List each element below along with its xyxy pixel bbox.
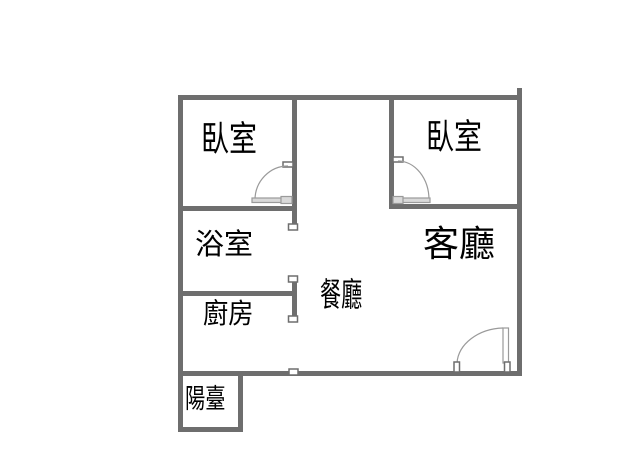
wall-bedroom-left-bottom <box>178 206 297 211</box>
room-label-living-room: 客廳 <box>423 226 495 262</box>
entrance-jamb-left <box>454 362 460 372</box>
door-arc-bedroom-right <box>398 161 429 200</box>
wall-left <box>178 95 183 432</box>
room-label-balcony: 陽臺 <box>185 386 226 413</box>
wall-balcony-bottom <box>178 427 243 432</box>
door-bedroom-left <box>252 162 293 204</box>
doorway-jamb-bathroom <box>289 224 298 230</box>
wall-bottom <box>178 371 522 376</box>
wall-right <box>517 88 522 376</box>
door-arc-bedroom-left <box>255 166 288 200</box>
door-leaf-bedroom-right <box>399 198 430 203</box>
doorway-jamb-bottom-wall <box>289 369 298 375</box>
entrance-jamb-right <box>505 362 511 372</box>
wall-dining-partition <box>292 282 297 316</box>
wall-bedroom-right-bottom <box>389 204 522 209</box>
door-hinge-bedroom-right <box>393 197 403 204</box>
entrance-door-leaf <box>503 328 509 363</box>
wall-bedroom-left-right <box>292 95 297 224</box>
room-label-kitchen: 廚房 <box>203 300 253 328</box>
door-hinge-bedroom-left <box>281 197 292 204</box>
doorway-jamb-dining-bottom <box>289 316 298 322</box>
room-label-bathroom: 浴室 <box>195 231 253 260</box>
room-label-bedroom-right: 臥室 <box>426 120 482 155</box>
room-label-bedroom-left: 臥室 <box>201 122 257 157</box>
entrance-door <box>454 328 510 372</box>
wall-bedroom-right-left <box>389 95 394 209</box>
door-bedroom-right <box>393 157 430 204</box>
wall-kitchen-top <box>178 291 292 296</box>
doorway-jamb-dining-top <box>289 276 298 282</box>
wall-top <box>178 95 522 100</box>
floor-plan: 臥室 臥室 浴室 客廳 餐廳 廚房 陽臺 <box>0 0 638 460</box>
entrance-door-arc <box>457 328 503 363</box>
wall-balcony-right <box>238 376 243 432</box>
room-label-dining-room: 餐廳 <box>320 278 362 311</box>
floor-plan-drawing <box>0 0 638 460</box>
